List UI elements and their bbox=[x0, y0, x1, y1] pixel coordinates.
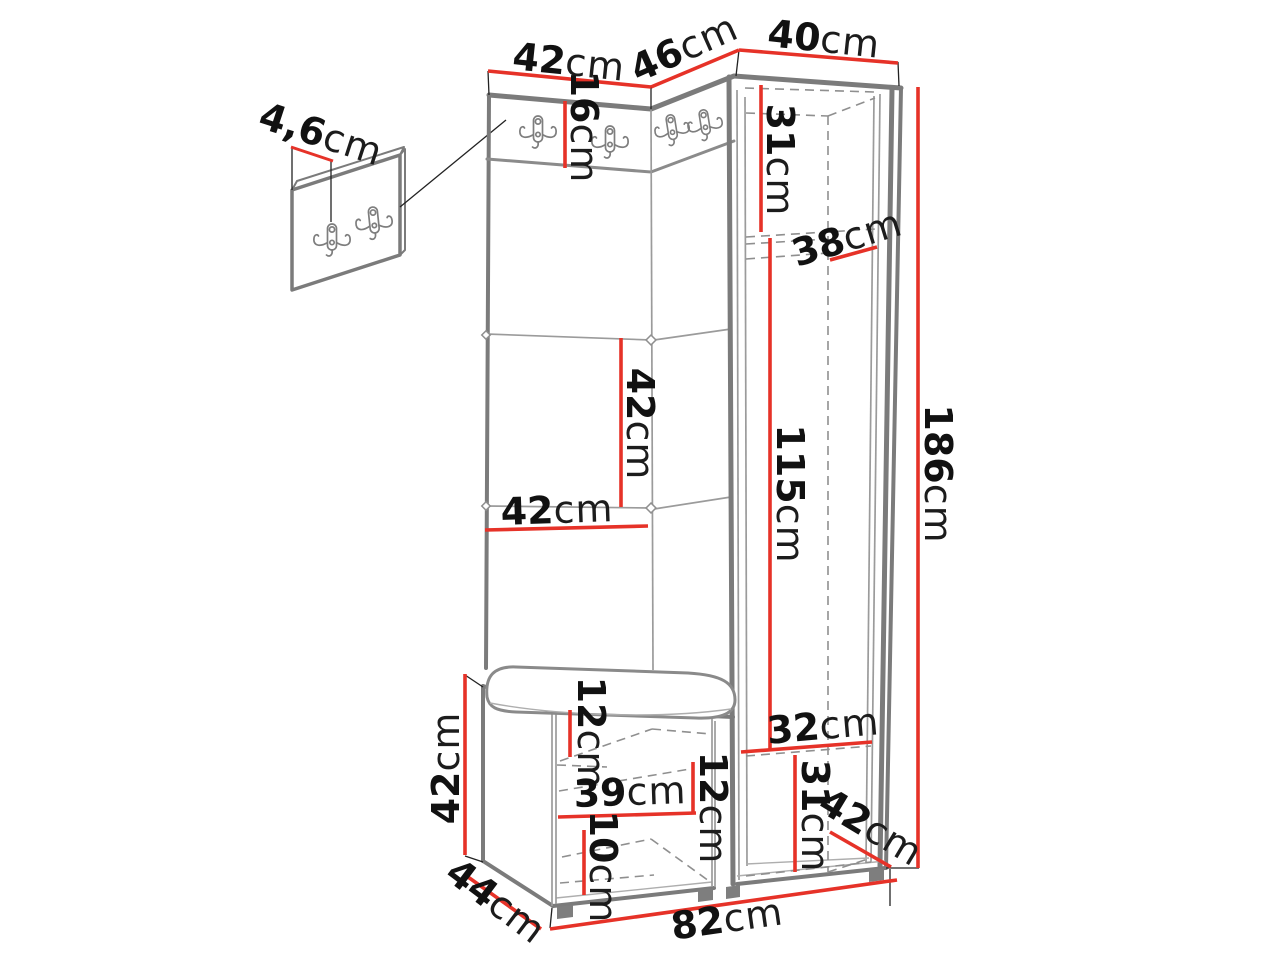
dimension-upper-interior-height: 31cm bbox=[758, 85, 802, 232]
dimensions: 4,6cm 42cm 46cm 40cm 16cm 31cm 38cm bbox=[254, 5, 960, 953]
coat-hook-icon bbox=[653, 112, 692, 147]
wall-panel-front bbox=[292, 155, 400, 290]
dimension-bench-lower-clearance: 10cm bbox=[581, 811, 625, 924]
furniture-foot bbox=[557, 905, 573, 919]
dimension-bench-interior-width: 39cm bbox=[558, 768, 696, 817]
dimension-label: 42cm bbox=[500, 486, 614, 534]
dimension-label: 82cm bbox=[668, 889, 786, 948]
tufting-button bbox=[482, 502, 490, 510]
dimension-bench-height: 42cm bbox=[424, 674, 468, 855]
dimension-total-height: 186cm bbox=[916, 87, 960, 868]
tufting-button bbox=[646, 335, 656, 345]
dimension-label: 44cm bbox=[438, 849, 555, 952]
dimension-panel-width: 42cm bbox=[485, 486, 648, 534]
furniture-dimension-diagram: 4,6cm 42cm 46cm 40cm 16cm 31cm 38cm bbox=[0, 0, 1280, 960]
dimension-label: 31cm bbox=[758, 104, 802, 217]
coat-hook-icon bbox=[686, 107, 725, 142]
dimension-label: 10cm bbox=[581, 811, 625, 924]
panel-column bbox=[482, 76, 901, 670]
coat-hook-icon bbox=[520, 116, 556, 148]
dimension-label: 12cm bbox=[691, 752, 735, 865]
tufting-button bbox=[646, 503, 656, 513]
dimension-bench-shelf-clearance: 12cm bbox=[691, 752, 735, 865]
dimension-hanging-space-height: 115cm bbox=[768, 238, 812, 751]
dimension-bench-depth: 44cm bbox=[438, 849, 555, 952]
dimension-panel-section-height: 42cm bbox=[618, 338, 662, 507]
dimension-hook-strip-height: 16cm bbox=[562, 71, 606, 184]
dimension-label: 115cm bbox=[768, 424, 812, 563]
dimension-label: 39cm bbox=[573, 768, 687, 816]
dimension-label: 4,6cm bbox=[254, 93, 389, 174]
furniture-foot bbox=[869, 868, 884, 882]
dimension-lower-interior-width: 32cm bbox=[741, 699, 881, 753]
dimension-top-right-width: 40cm bbox=[739, 11, 898, 67]
dimension-label: 32cm bbox=[765, 699, 881, 753]
dimension-label: 40cm bbox=[766, 11, 883, 67]
dimension-label: 186cm bbox=[916, 404, 960, 543]
dimension-label: 42cm bbox=[424, 712, 468, 825]
diagram-canvas: 4,6cm 42cm 46cm 40cm 16cm 31cm 38cm bbox=[0, 0, 1280, 960]
dimension-wall-panel-thickness: 4,6cm bbox=[254, 93, 389, 174]
dimension-label: 42cm bbox=[618, 368, 662, 481]
dimension-label: 16cm bbox=[562, 71, 606, 184]
